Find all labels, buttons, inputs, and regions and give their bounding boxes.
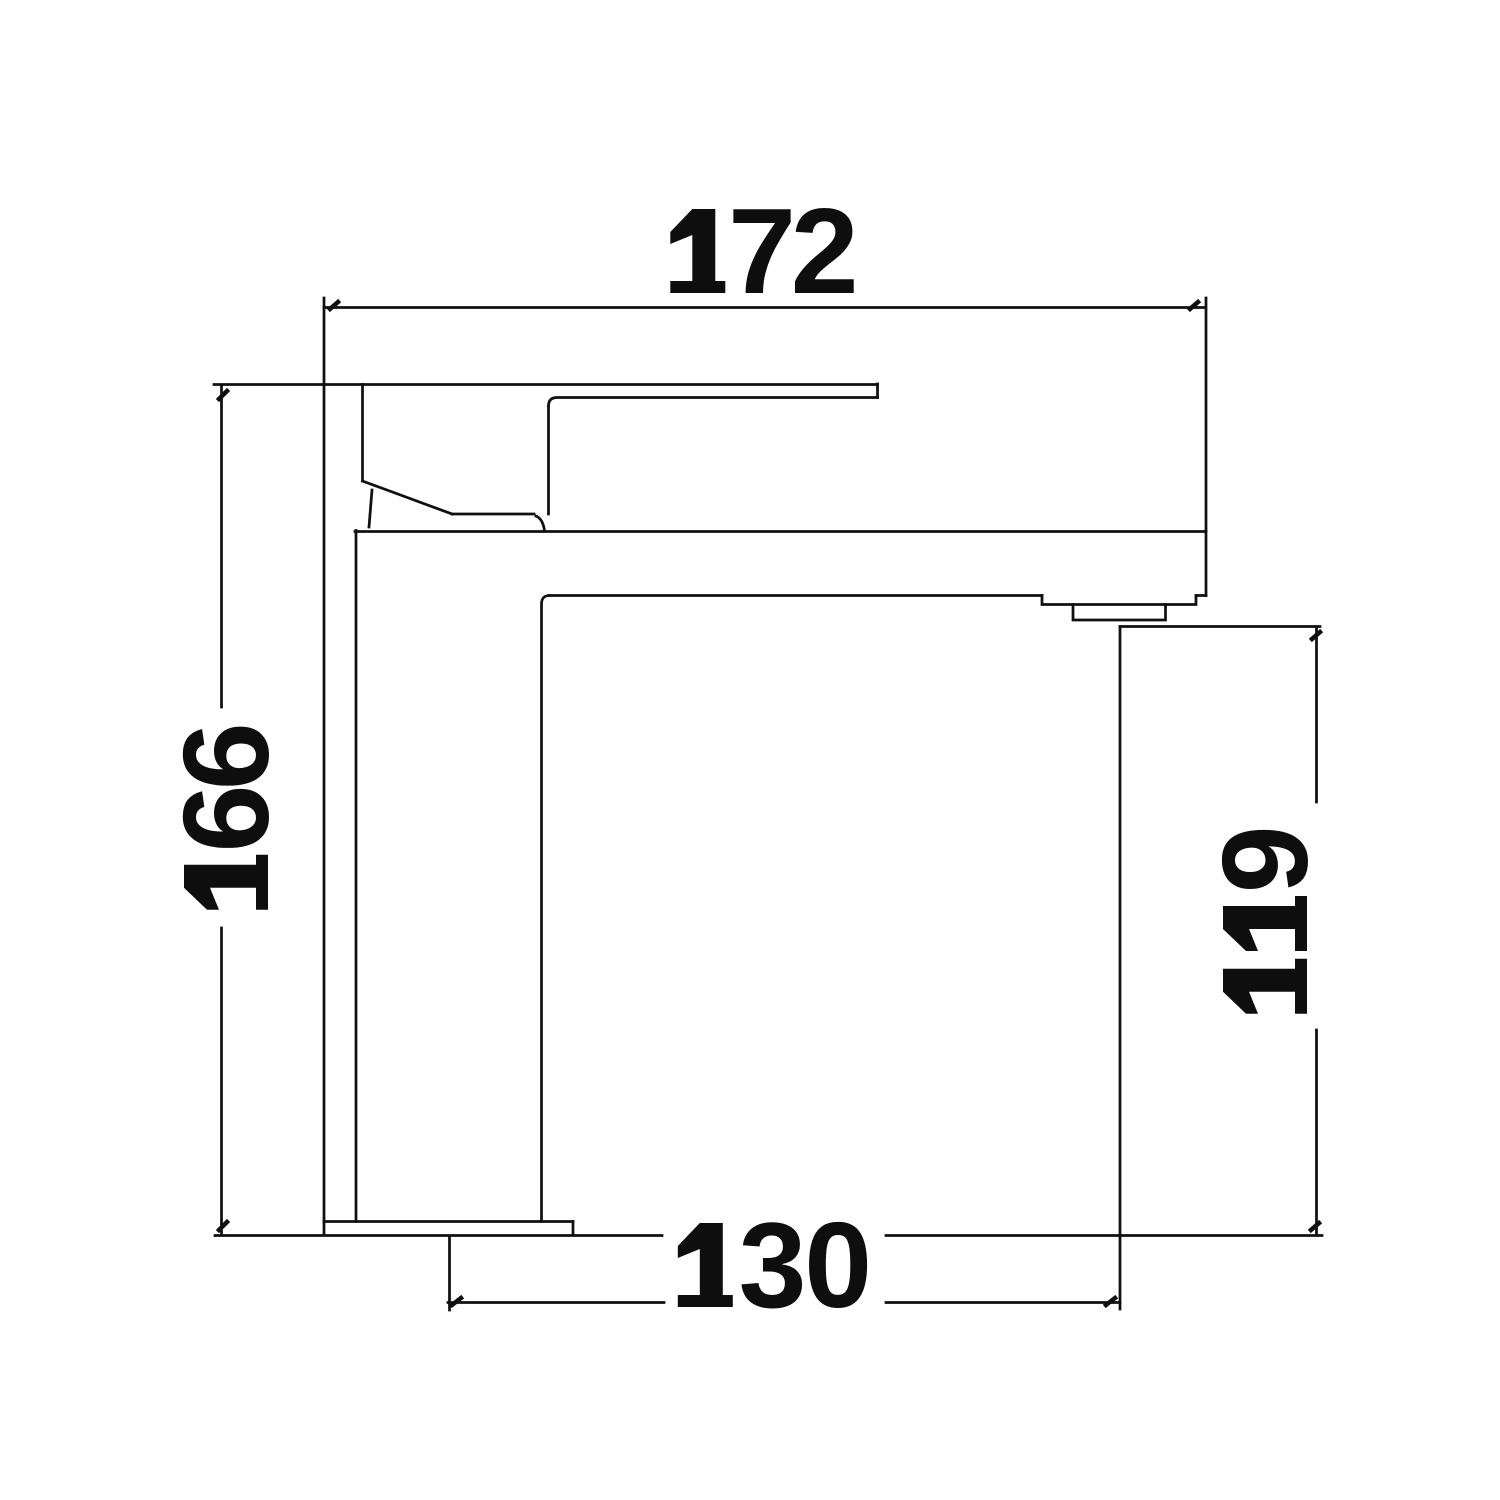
svg-text:0: 0 [804, 1197, 872, 1333]
svg-text:2: 2 [791, 183, 859, 319]
svg-text:6: 6 [158, 785, 294, 853]
svg-text:7: 7 [728, 183, 796, 319]
svg-text:6: 6 [158, 722, 294, 790]
svg-text:3: 3 [739, 1197, 807, 1333]
svg-text:9: 9 [1197, 825, 1333, 893]
